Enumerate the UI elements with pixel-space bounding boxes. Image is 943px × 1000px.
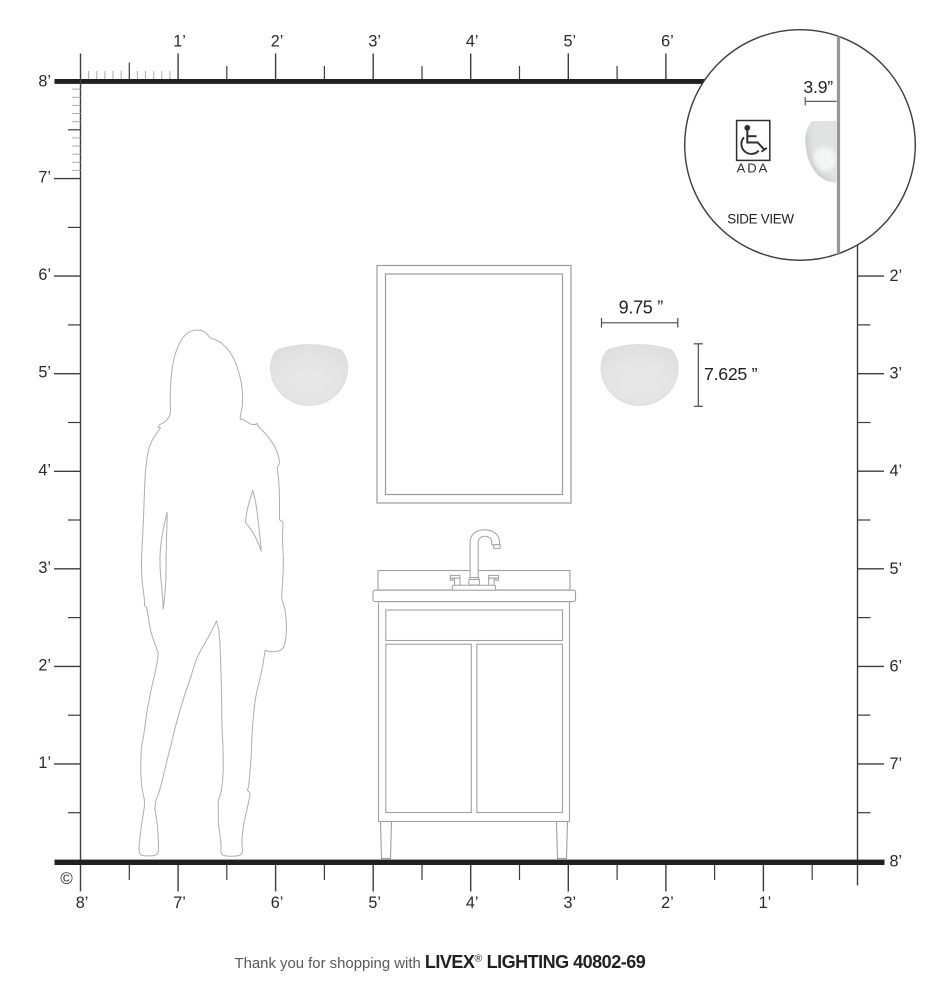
svg-text:7.625 ”: 7.625 ” [704, 364, 758, 384]
svg-text:ADA: ADA [737, 161, 770, 176]
svg-text:4’: 4’ [890, 462, 903, 480]
svg-text:5’: 5’ [368, 894, 381, 912]
svg-text:5’: 5’ [563, 33, 576, 51]
svg-text:8’: 8’ [76, 894, 89, 912]
svg-text:7’: 7’ [38, 169, 51, 187]
svg-text:3’: 3’ [38, 559, 51, 577]
svg-text:1’: 1’ [38, 754, 51, 772]
svg-text:6’: 6’ [890, 657, 903, 675]
svg-text:3.9”: 3.9” [803, 77, 833, 97]
svg-text:9.75 ”: 9.75 ” [619, 298, 664, 318]
svg-text:1’: 1’ [759, 894, 772, 912]
svg-text:6’: 6’ [38, 266, 51, 284]
svg-text:©: © [60, 869, 73, 888]
svg-text:6’: 6’ [271, 894, 284, 912]
svg-text:4’: 4’ [38, 461, 51, 479]
svg-text:4’: 4’ [466, 894, 479, 912]
svg-text:SIDE VIEW: SIDE VIEW [727, 212, 794, 227]
svg-text:6’: 6’ [661, 33, 674, 51]
svg-text:8’: 8’ [38, 73, 51, 91]
svg-text:7’: 7’ [890, 755, 903, 773]
svg-text:4’: 4’ [466, 33, 479, 51]
svg-text:3’: 3’ [890, 365, 903, 383]
svg-text:2’: 2’ [661, 894, 674, 912]
svg-text:2’: 2’ [890, 267, 903, 285]
svg-text:5’: 5’ [38, 364, 51, 382]
svg-text:2’: 2’ [271, 33, 284, 51]
svg-text:3’: 3’ [368, 33, 381, 51]
svg-text:3’: 3’ [563, 894, 576, 912]
svg-text:8’: 8’ [890, 853, 903, 871]
svg-text:5’: 5’ [890, 560, 903, 578]
svg-text:1’: 1’ [173, 33, 186, 51]
svg-text:Thank you for shopping with LI: Thank you for shopping with LIVEX® LIGHT… [235, 952, 646, 972]
svg-text:7’: 7’ [173, 894, 186, 912]
svg-text:2’: 2’ [38, 656, 51, 674]
